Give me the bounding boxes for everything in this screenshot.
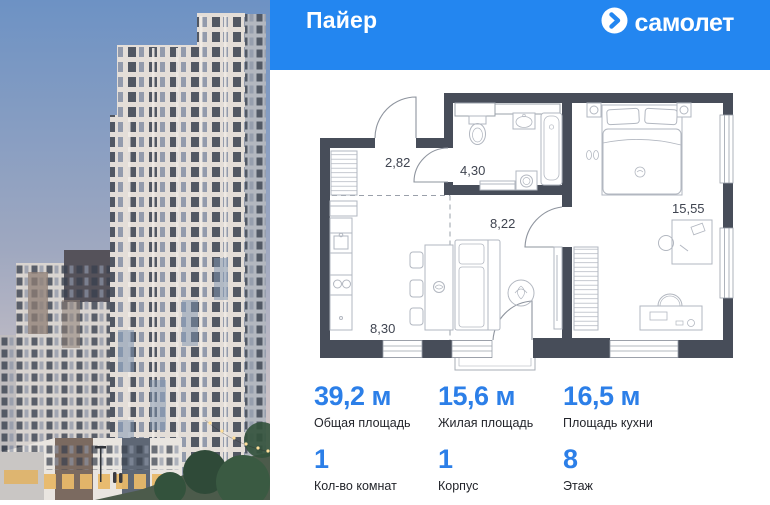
stat-living-area-label: Жилая площадь: [438, 416, 563, 430]
brand-logo-text: самолет: [635, 10, 735, 37]
stat-kitchen-area: 16,5 м Площадь кухни: [563, 382, 723, 430]
detail-floor: 8 Этаж: [563, 445, 723, 493]
brand-logo: самолет: [601, 7, 735, 39]
floor-plan: 2,82 4,30 8,22 15,55 8,30: [310, 85, 750, 375]
card-header: Пайер самолет: [270, 0, 770, 70]
room-area-label-bathroom: 4,30: [460, 163, 485, 178]
detail-rooms: 1 Кол-во комнат: [314, 445, 438, 493]
detail-rooms-label: Кол-во комнат: [314, 479, 438, 493]
stat-kitchen-area-label: Площадь кухни: [563, 416, 723, 430]
detail-stats: 1 Кол-во комнат 1 Корпус 8 Этаж: [314, 445, 723, 493]
stat-kitchen-area-value: 16,5 м: [563, 382, 723, 411]
apartment-card: Пайер самолет: [270, 0, 770, 500]
project-title: Пайер: [306, 7, 377, 33]
stat-total-area: 39,2 м Общая площадь: [314, 382, 438, 430]
detail-rooms-value: 1: [314, 445, 438, 474]
plan-furniture: [330, 103, 712, 330]
room-area-label-bedroom: 15,55: [672, 201, 705, 216]
listing-card[interactable]: Пайер самолет: [0, 0, 770, 500]
building-photo-render: [0, 0, 270, 500]
detail-building-value: 1: [438, 445, 563, 474]
stat-living-area: 15,6 м Жилая площадь: [438, 382, 563, 430]
detail-building: 1 Корпус: [438, 445, 563, 493]
stat-total-area-value: 39,2 м: [314, 382, 438, 411]
area-stats: 39,2 м Общая площадь 15,6 м Жилая площад…: [314, 382, 723, 430]
stat-total-area-label: Общая площадь: [314, 416, 438, 430]
room-area-label-hallway: 2,82: [385, 155, 410, 170]
samolet-logo-icon: [601, 7, 628, 39]
room-area-label-hall: 8,22: [490, 216, 515, 231]
stat-living-area-value: 15,6 м: [438, 382, 563, 411]
detail-floor-value: 8: [563, 445, 723, 474]
detail-building-label: Корпус: [438, 479, 563, 493]
room-area-label-kitchen: 8,30: [370, 321, 395, 336]
detail-floor-label: Этаж: [563, 479, 723, 493]
building-photo: [0, 0, 270, 500]
